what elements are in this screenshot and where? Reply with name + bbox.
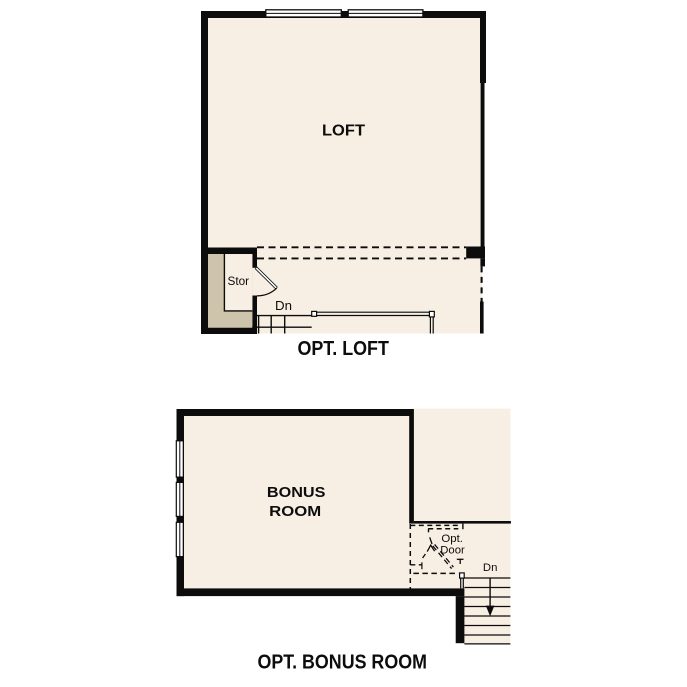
svg-text:BONUS: BONUS — [267, 484, 326, 501]
svg-text:Door: Door — [440, 545, 465, 557]
svg-text:OPT. LOFT: OPT. LOFT — [297, 337, 389, 360]
svg-text:Opt.: Opt. — [441, 533, 463, 545]
svg-text:Dn: Dn — [275, 298, 292, 313]
svg-text:Stor: Stor — [227, 274, 249, 288]
svg-text:OPT. BONUS ROOM: OPT. BONUS ROOM — [257, 651, 427, 674]
svg-text:ROOM: ROOM — [269, 503, 321, 520]
svg-text:Dn: Dn — [483, 562, 498, 574]
svg-text:LOFT: LOFT — [322, 123, 365, 140]
